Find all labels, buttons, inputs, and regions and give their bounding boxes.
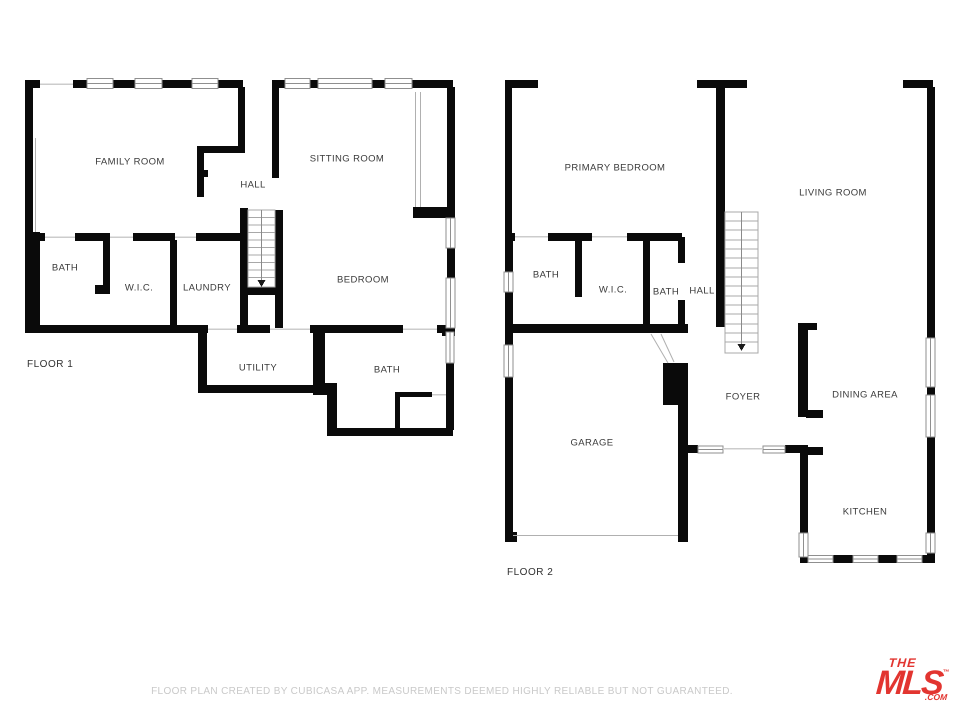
room-label-dining-area: DINING AREA	[832, 390, 898, 401]
room-label-bath-f1-left: BATH	[52, 263, 78, 274]
room-label-utility: UTILITY	[239, 363, 277, 374]
logo-trademark: ™	[942, 669, 949, 676]
floor2-label: FLOOR 2	[507, 567, 553, 578]
stairs-floor2	[725, 212, 758, 353]
room-label-bath-f2-small: BATH	[653, 287, 679, 298]
room-label-wic-f2: W.I.C.	[599, 285, 627, 296]
room-label-family-room: FAMILY ROOM	[95, 157, 165, 168]
stairs-floor1	[248, 210, 275, 287]
room-label-laundry: LAUNDRY	[183, 283, 231, 294]
disclaimer-text: FLOOR PLAN CREATED BY CUBICASA APP. MEAS…	[24, 686, 860, 697]
floor2-walls	[505, 80, 935, 563]
floor1-walls	[25, 80, 455, 436]
room-label-sitting-room: SITTING ROOM	[310, 154, 384, 165]
room-label-hall-f2: HALL	[689, 286, 714, 297]
room-label-bedroom: BEDROOM	[337, 275, 389, 286]
floor1-label: FLOOR 1	[27, 359, 73, 370]
the-mls-logo: THE MLS™ .COM	[874, 657, 950, 713]
garage-door-swing-lines	[651, 334, 674, 363]
room-label-garage: GARAGE	[570, 438, 613, 449]
room-label-bath-f1-lower: BATH	[374, 365, 400, 376]
room-label-bath-f2-left: BATH	[533, 270, 559, 281]
room-label-living-room: LIVING ROOM	[799, 188, 867, 199]
room-label-foyer: FOYER	[726, 392, 761, 403]
floorplan-canvas	[0, 0, 960, 720]
room-label-hall-f1: HALL	[240, 180, 265, 191]
floor-plan-page: { "floor1": { "label": "FLOOR 1", "rooms…	[0, 0, 960, 720]
room-label-kitchen: KITCHEN	[843, 507, 888, 518]
room-label-wic-f1: W.I.C.	[125, 283, 153, 294]
room-label-primary-bedroom: PRIMARY BEDROOM	[565, 163, 666, 174]
